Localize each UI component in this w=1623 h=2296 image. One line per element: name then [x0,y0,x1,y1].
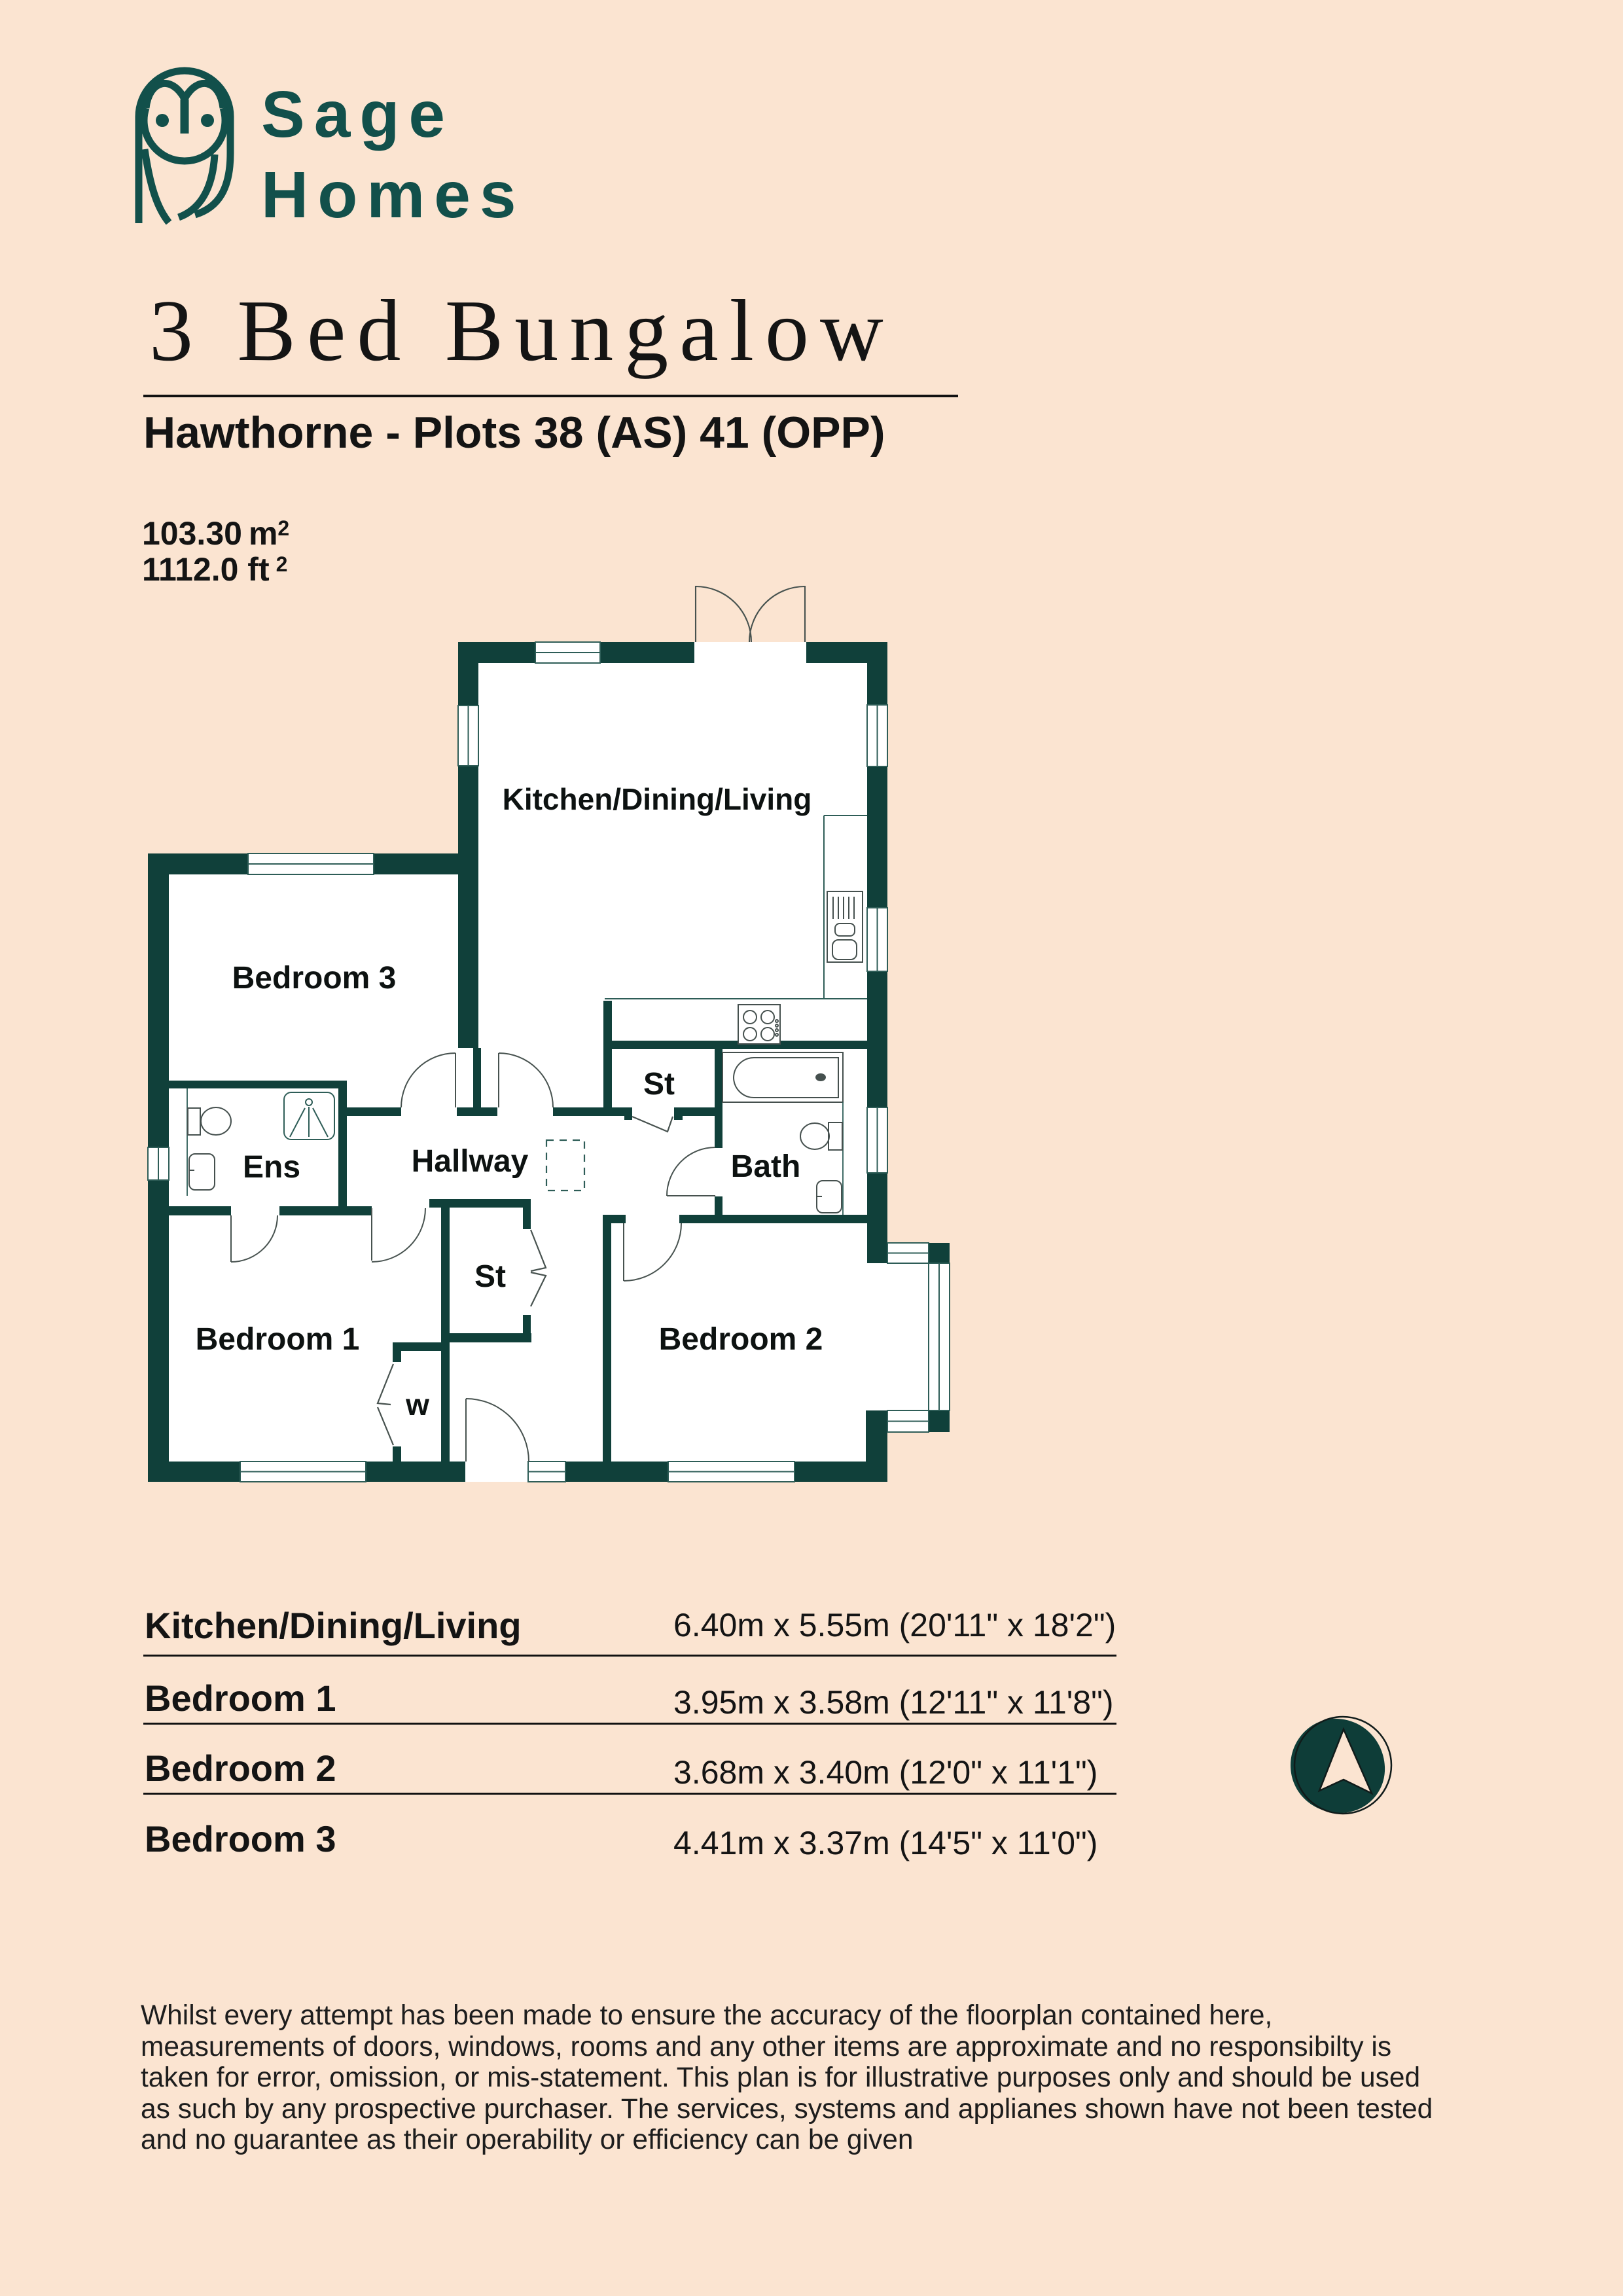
svg-text:Kitchen/Dining/Living: Kitchen/Dining/Living [503,782,812,816]
svg-text:w: w [405,1388,429,1422]
svg-text:Bath: Bath [731,1149,801,1184]
svg-text:St: St [474,1259,506,1294]
svg-text:St: St [643,1067,675,1102]
svg-text:Bedroom 3: Bedroom 3 [232,961,397,996]
svg-text:Bedroom 2: Bedroom 2 [659,1322,823,1357]
svg-text:Bedroom 1: Bedroom 1 [196,1322,360,1357]
svg-text:Hallway: Hallway [412,1144,529,1179]
svg-text:Ens: Ens [243,1150,300,1185]
